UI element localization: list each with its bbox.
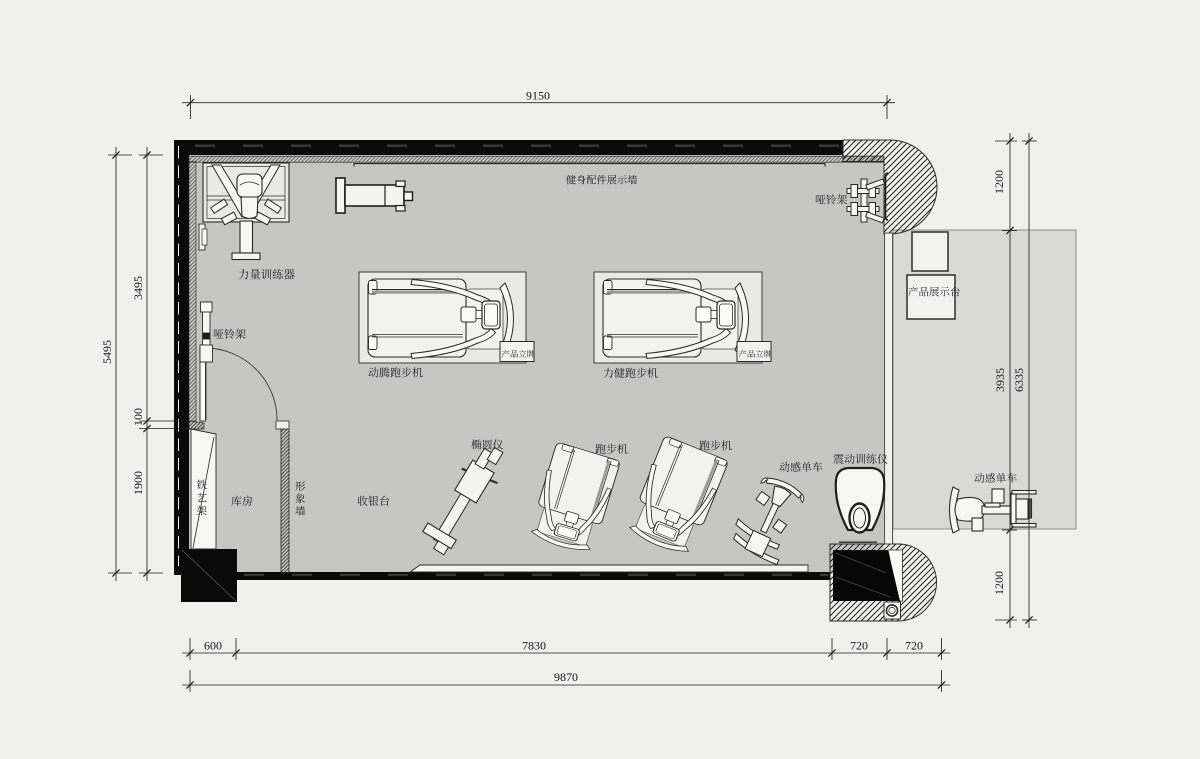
svg-text:9870: 9870 [554, 670, 578, 684]
svg-text:9150: 9150 [526, 89, 550, 103]
svg-text:720: 720 [905, 639, 923, 653]
svg-text:5495: 5495 [100, 340, 114, 364]
svg-text:1900: 1900 [131, 471, 145, 495]
svg-text:1200: 1200 [992, 170, 1006, 194]
svg-text:6335: 6335 [1012, 368, 1026, 392]
svg-text:7830: 7830 [522, 639, 546, 653]
svg-text:100: 100 [131, 408, 145, 426]
svg-text:600: 600 [204, 639, 222, 653]
svg-text:3495: 3495 [131, 276, 145, 300]
svg-text:720: 720 [850, 639, 868, 653]
svg-text:3935: 3935 [993, 368, 1007, 392]
svg-text:1200: 1200 [992, 571, 1006, 595]
